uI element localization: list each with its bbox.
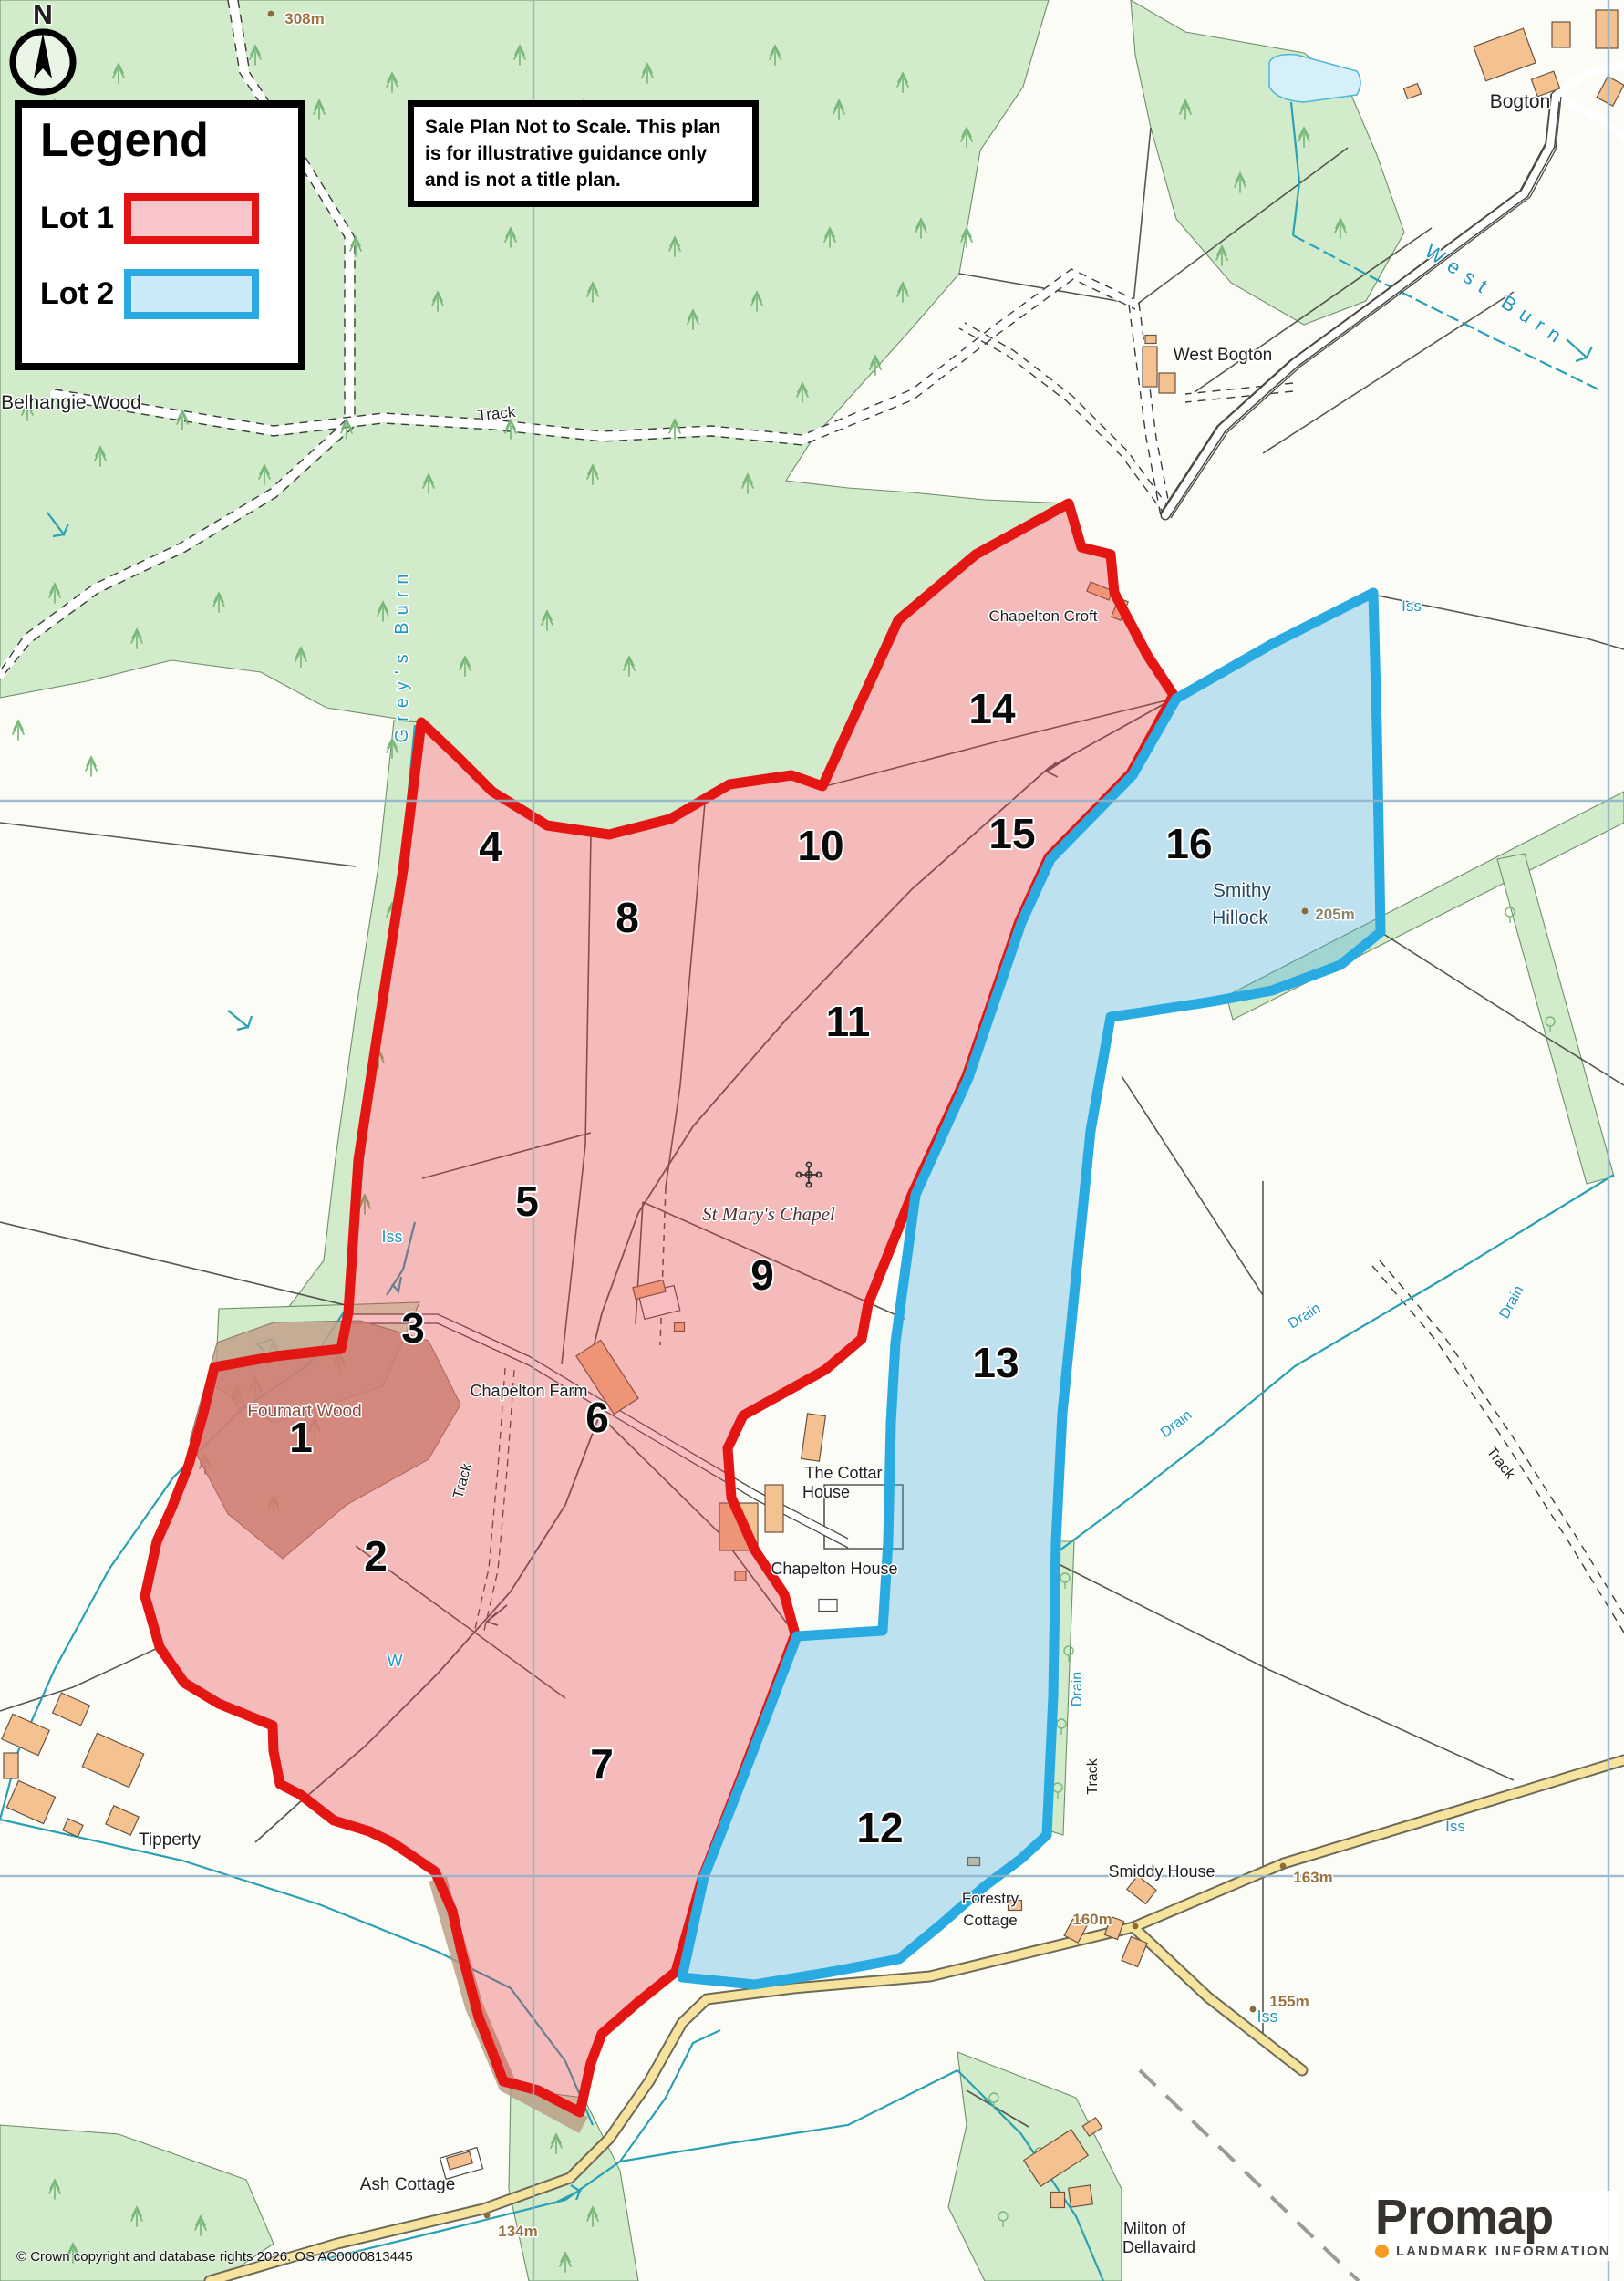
place-label: St Mary's Chapel [702,1203,835,1225]
disclaimer-box: Sale Plan Not to Scale. This plan is for… [408,100,759,207]
parcel-number-16: 16 [1165,820,1212,867]
place-label: Cottage [963,1912,1018,1929]
parcel-number-10: 10 [797,822,843,869]
parcel-number-14: 14 [968,685,1016,732]
disclaimer-line2: is for illustrative guidance only [425,140,741,167]
promap-logo: Promap LANDMARK INFORMATION [1370,2191,1617,2261]
place-label: Forestry [962,1890,1019,1907]
place-label: West Bogton [1174,346,1272,365]
spot-height-label: 308m [284,10,324,27]
place-label: Chapelton Farm [470,1382,587,1400]
parcel-number-4: 4 [479,823,502,870]
place-label: Ash Cottage [360,2175,456,2194]
legend-lot1-swatch [124,193,259,244]
spot-height-label: 160m [1072,1911,1112,1928]
parcel-number-5: 5 [515,1177,539,1225]
place-label: The Cottar [804,1464,882,1482]
sale-plan-page: N 12345678910111213141516 Belhangie Wood… [0,0,1624,2281]
promap-wordmark: Promap [1375,2193,1611,2242]
building [1159,373,1175,393]
disclaimer-line3: and is not a title plan. [425,167,741,193]
spot-height-label: 134m [498,2223,537,2240]
copyright-note: © Crown copyright and database rights 20… [16,2249,413,2265]
place-label: Chapelton House [771,1560,897,1578]
building [1069,2185,1093,2207]
parcel-number-6: 6 [585,1394,609,1441]
building [1051,2193,1065,2208]
water-label: Grey's Burn [392,567,412,743]
building [4,1753,18,1778]
building [1143,347,1157,387]
landmark-dot-icon [1375,2245,1389,2258]
building [1552,22,1570,47]
building [1596,10,1618,48]
place-label: Dellavaird [1122,2238,1195,2256]
disclaimer-line1: Sale Plan Not to Scale. This plan [425,114,741,140]
parcel-number-3: 3 [401,1304,425,1352]
place-label: Chapelton Croft [988,607,1097,625]
water-label: Iss [1402,597,1422,615]
parcel-number-7: 7 [590,1740,614,1788]
building [819,1600,837,1612]
spot-height-label: 205m [1315,906,1354,923]
water-label: Drain [1070,1672,1085,1706]
spot-height-label: 155m [1269,1993,1309,2010]
parcel-number-2: 2 [364,1532,388,1580]
landmark-tagline: LANDMARK INFORMATION [1396,2244,1611,2259]
place-label: Smithy [1213,880,1272,901]
place-label: Tipperty [139,1830,201,1850]
parcel-number-11: 11 [826,998,871,1045]
place-label: Bogton [1490,91,1551,112]
legend-panel: Legend Lot 1 Lot 2 [15,100,305,370]
place-label: Belhangie Wood [1,392,141,413]
parcel-number-12: 12 [856,1804,903,1851]
svg-text:N: N [33,0,53,30]
place-label: Foumart Wood [247,1402,361,1421]
parcel-number-9: 9 [750,1251,774,1299]
place-label: Track [1085,1757,1101,1794]
legend-title: Legend [40,113,298,168]
parcel-number-8: 8 [615,894,639,941]
legend-item-lot2: Lot 2 [40,269,298,319]
water-label: Iss [1257,2007,1277,2026]
place-label: House [802,1483,850,1501]
water-label: Iss [381,1228,402,1246]
legend-lot2-swatch [124,269,259,319]
water-label: Iss [1445,1818,1465,1835]
water-label: W [388,1652,403,1670]
legend-item-lot1: Lot 1 [40,193,298,244]
place-label: Hillock [1212,907,1268,928]
spot-height-label: 163m [1293,1869,1332,1886]
parcel-number-13: 13 [972,1339,1019,1386]
place-label: Smiddy House [1108,1862,1215,1881]
building [1145,336,1156,344]
parcel-number-15: 15 [988,810,1035,857]
legend-lot1-label: Lot 1 [40,201,124,236]
legend-lot2-label: Lot 2 [40,276,124,312]
building [765,1485,783,1532]
place-label: Milton of [1123,2219,1186,2237]
